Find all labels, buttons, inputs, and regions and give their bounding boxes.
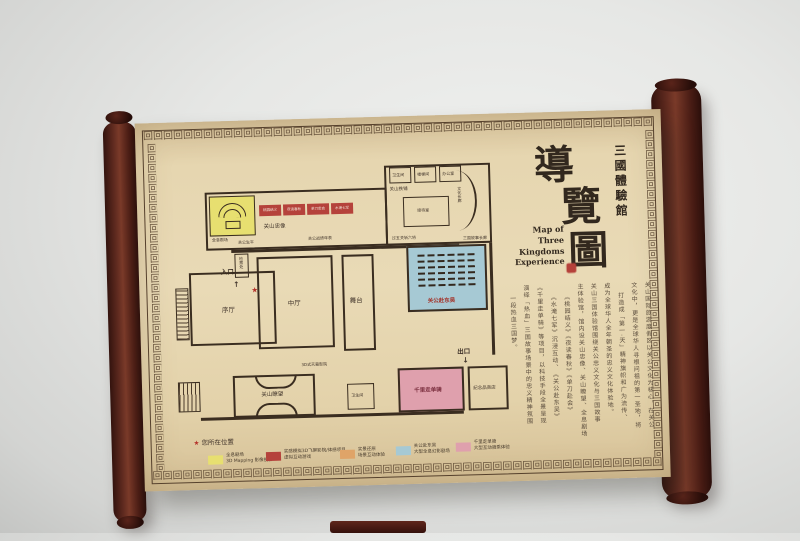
small-room: 楼梯间 [414, 166, 436, 183]
legend-item-theater: 关公赴东吴 大型全息幻影剧场 [396, 443, 450, 456]
central-hall-label: 中厅 [288, 300, 301, 308]
dongwu-theater-label: 关公赴东吴 [428, 298, 456, 305]
roller-knob [117, 516, 144, 530]
legend-label: 大型全息幻影剧场 [414, 449, 450, 456]
floor-plan: 全息剧场 桃园结义 夜读春秋 单刀赴会 水淹七军 关山忠像 关公生平 关公战绩年… [156, 151, 512, 451]
reception-label: 接待室 [417, 208, 429, 213]
restroom-label: 卫生间 [392, 173, 404, 178]
intro-column: 关山三国体验馆围绕关公忠义文化与三国故事 [588, 283, 602, 453]
legend-swatch-red [266, 452, 281, 461]
reception-room: 接待室 [403, 196, 450, 227]
ride-experience-room: 千里走单骑 [398, 367, 465, 413]
star-icon: ★ [193, 439, 199, 447]
legend-swatch-blue [396, 446, 411, 455]
intro-column: 《桃园结义》《夜读春秋》《单刀赴会》 [561, 284, 575, 456]
intro-column: 《水淹七军》沉浸互动、《关公赴东吴》 [548, 284, 562, 456]
legend-item-sim: 实感模拟3D飞屏影院/体感项目 虚拟互动游戏 [266, 448, 346, 462]
intro-column: 演绎「热血」三国故事场景中的忠义精神氛围 [521, 285, 535, 455]
intro-column: 成为全球华人全年朝圣的忠义文化体验地。 [602, 282, 616, 452]
intro-column: 《千里走单骑》等项目，以科技手段全景呈现 [534, 284, 548, 454]
prologue-hall-label: 序厅 [222, 307, 235, 315]
intro-column: 文化中，更是全球华人寻根问祖的第一圣地，将 [629, 282, 643, 452]
intro-column: 打造成「第一·天」精神旗帜和广为流传、 [615, 282, 629, 455]
intro-column: 一段热血三国梦。 [507, 285, 521, 455]
english-title: Map of Three Kingdoms Experience [496, 224, 565, 269]
guan-timeline-label: 关公战绩年表 [308, 236, 332, 241]
intro-text-block: 关山国际旅游度假区以关公文化为核心，在关公 文化中，更是全球华人寻根问祖的第一圣… [499, 281, 656, 455]
stairs-label: 楼梯间 [417, 172, 429, 177]
legend-item-scene: 实景还原 场景互动体验 [340, 447, 385, 460]
guan-life-label: 关公生平 [238, 240, 254, 245]
ride-experience-label: 千里走单骑 [414, 387, 442, 394]
map-title-char: 覽 [561, 187, 602, 228]
legend-item-holo: 全息剧场 3D Mapping 影像投影 [208, 452, 273, 465]
legend-swatch-pink [456, 442, 471, 451]
legend-swatch-orange [340, 450, 355, 459]
venue-title-vertical: 三國體驗館 [611, 144, 630, 219]
english-title-line: Experience [497, 256, 565, 269]
exhibit-box: 水淹七军 [331, 203, 353, 215]
stairs-hatch [175, 288, 189, 340]
legend-swatch-yellow [208, 455, 223, 464]
exhibit-box: 单刀赴会 [307, 203, 329, 215]
scroll-map: 回回回回回回回回回回回回回回回回回回回回回回回回回回回回回回回回回回回回回回回回… [92, 81, 730, 540]
theater-seats [412, 249, 481, 287]
lookout-label: 关山瞭望 [261, 392, 283, 399]
restroom-label: 卫生间 [351, 393, 363, 398]
you-are-here-text: 您所在位置 [201, 438, 234, 447]
guanshan-statue-label: 关山忠像 [264, 223, 286, 230]
small-room: 卫生间 [389, 167, 411, 184]
dome-cinema-label: 3D式天幕影院 [301, 362, 327, 367]
holo-theater-room [209, 195, 256, 236]
lookout-arc [255, 374, 297, 389]
english-title-line: Three Kingdoms [496, 234, 565, 257]
map-title-char: 導 [533, 145, 574, 186]
meander-border-top: 回回回回回回回回回回回回回回回回回回回回回回回回回回回回回回回回回回回回回回回回… [143, 117, 653, 143]
exhibit-box: 桃园结义 [259, 205, 281, 217]
legend-item-ride: 千里走单骑 大型互动骑乘体验 [456, 439, 510, 452]
lookout-room: 关山瞭望 [233, 374, 316, 418]
map-paper: 回回回回回回回回回回回回回回回回回回回回回回回回回回回回回回回回回回回回回回回回… [135, 109, 671, 492]
exhibit-box: 夜读春秋 [283, 204, 305, 216]
five-passes-label: 过五关斩六将 [392, 236, 416, 241]
red-seal-stamp [567, 263, 576, 272]
blacksmith-label: 关山铁铺 [390, 187, 408, 193]
ticket-check-label: 检票处 [238, 257, 243, 269]
souvenir-shop-label: 纪念品商店 [473, 386, 496, 392]
stage-label: 舞台 [350, 297, 363, 305]
intro-column: 主体验馆，馆内设关山忠像、关山瞭望、全息剧场 [575, 283, 589, 453]
wall-segment [489, 243, 495, 355]
holo-theater-label: 全息剧场 [212, 238, 228, 243]
partially-visible-object-below [330, 521, 426, 533]
dongwu-theater-room: 关公赴东吴 [406, 244, 488, 312]
roller-knob [666, 491, 708, 505]
restroom-room: 卫生间 [347, 383, 375, 410]
you-are-here-legend: ★ 您所在位置 [194, 439, 235, 448]
stairs-hatch [178, 382, 201, 413]
stage-box [225, 221, 240, 229]
corridor-label: 文化长廊 [457, 187, 462, 203]
exit-arrow: ↓ [462, 356, 469, 365]
legend-label: 场景互动体验 [358, 453, 385, 460]
